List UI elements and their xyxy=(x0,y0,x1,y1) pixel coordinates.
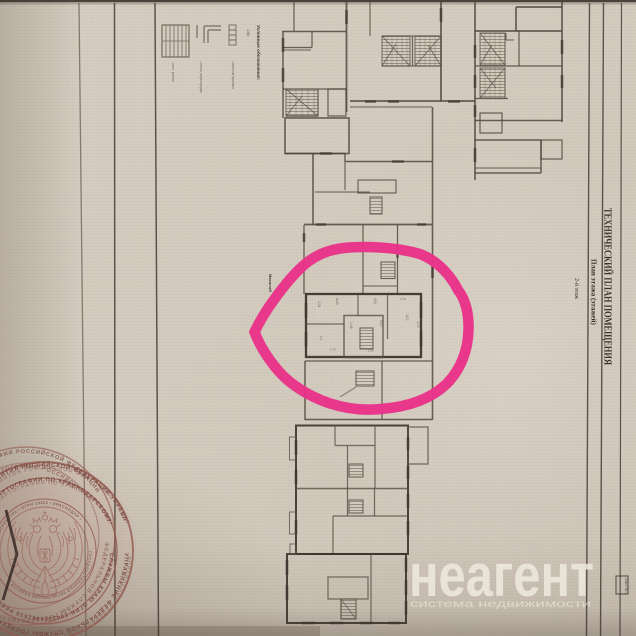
svg-text:Масштаб: Масштаб xyxy=(268,274,273,292)
svg-text:1,06: 1,06 xyxy=(368,349,374,353)
svg-text:Лист № 5: Лист № 5 xyxy=(624,578,629,594)
svg-text:4,1: 4,1 xyxy=(319,336,323,341)
svg-text:№2п: №2п xyxy=(335,298,339,305)
svg-text:4,79: 4,79 xyxy=(416,321,420,328)
svg-text:16,2: 16,2 xyxy=(405,314,409,321)
svg-text:2-й этаж: 2-й этаж xyxy=(573,278,580,300)
svg-text:- лест. клетки: - лест. клетки xyxy=(171,61,175,82)
svg-text:90,2: 90,2 xyxy=(379,320,383,327)
svg-text:Условные обозначения:: Условные обозначения: xyxy=(256,25,262,81)
svg-text:- оконные проёмы: - оконные проёмы xyxy=(231,60,235,89)
svg-text:ТЕХНИЧЕСКИЙ ПЛАН ПОМЕЩЕНИЯ: ТЕХНИЧЕСКИЙ ПЛАН ПОМЕЩЕНИЯ xyxy=(602,208,614,365)
svg-text:План этажа (этажей): План этажа (этажей) xyxy=(590,259,598,326)
svg-text:1:50: 1:50 xyxy=(246,29,250,36)
svg-text:(50): (50) xyxy=(373,298,377,304)
svg-text:1,98: 1,98 xyxy=(349,322,353,329)
svg-text:система недвижимости: система недвижимости xyxy=(410,598,591,610)
svg-text:2,79: 2,79 xyxy=(400,297,406,301)
svg-text:4,75: 4,75 xyxy=(330,348,336,352)
svg-text:3,24: 3,24 xyxy=(317,301,321,308)
svg-text:- стены, перегородки: - стены, перегородки xyxy=(199,60,203,93)
